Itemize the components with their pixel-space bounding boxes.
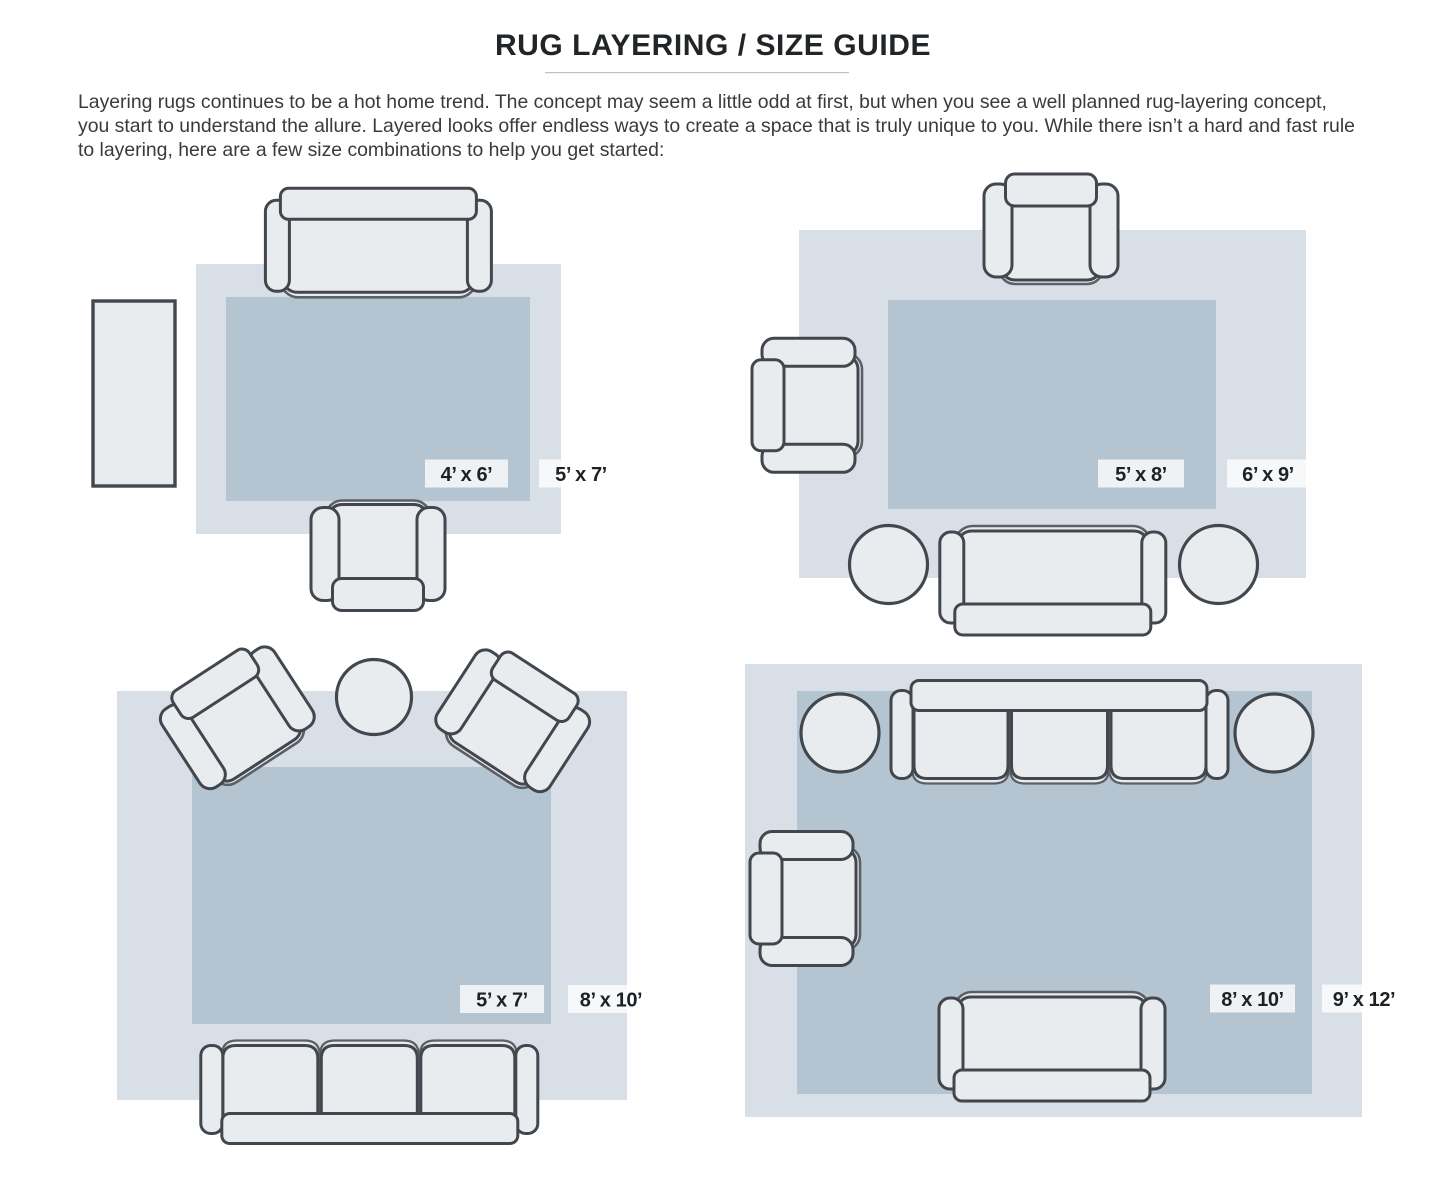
svg-text:4’ x 6’: 4’ x 6’ xyxy=(441,464,493,486)
svg-text:you start to understand the al: you start to understand the allure. Laye… xyxy=(78,115,1355,137)
svg-text:Layering rugs continues to be: Layering rugs continues to be a hot home… xyxy=(78,91,1327,113)
svg-text:8’ x 10’: 8’ x 10’ xyxy=(1221,989,1283,1011)
svg-text:5’ x 8’: 5’ x 8’ xyxy=(1115,464,1167,486)
svg-text:8’ x 10’: 8’ x 10’ xyxy=(580,990,642,1012)
svg-text:9’ x 12’: 9’ x 12’ xyxy=(1333,989,1395,1011)
svg-text:to layering, here are a few si: to layering, here are a few size combina… xyxy=(78,139,664,161)
svg-text:5’ x 7’: 5’ x 7’ xyxy=(476,990,528,1012)
svg-text:6’ x 9’: 6’ x 9’ xyxy=(1242,464,1294,486)
svg-text:RUG LAYERING / SIZE GUIDE: RUG LAYERING / SIZE GUIDE xyxy=(495,29,931,62)
svg-text:5’ x 7’: 5’ x 7’ xyxy=(555,464,607,486)
